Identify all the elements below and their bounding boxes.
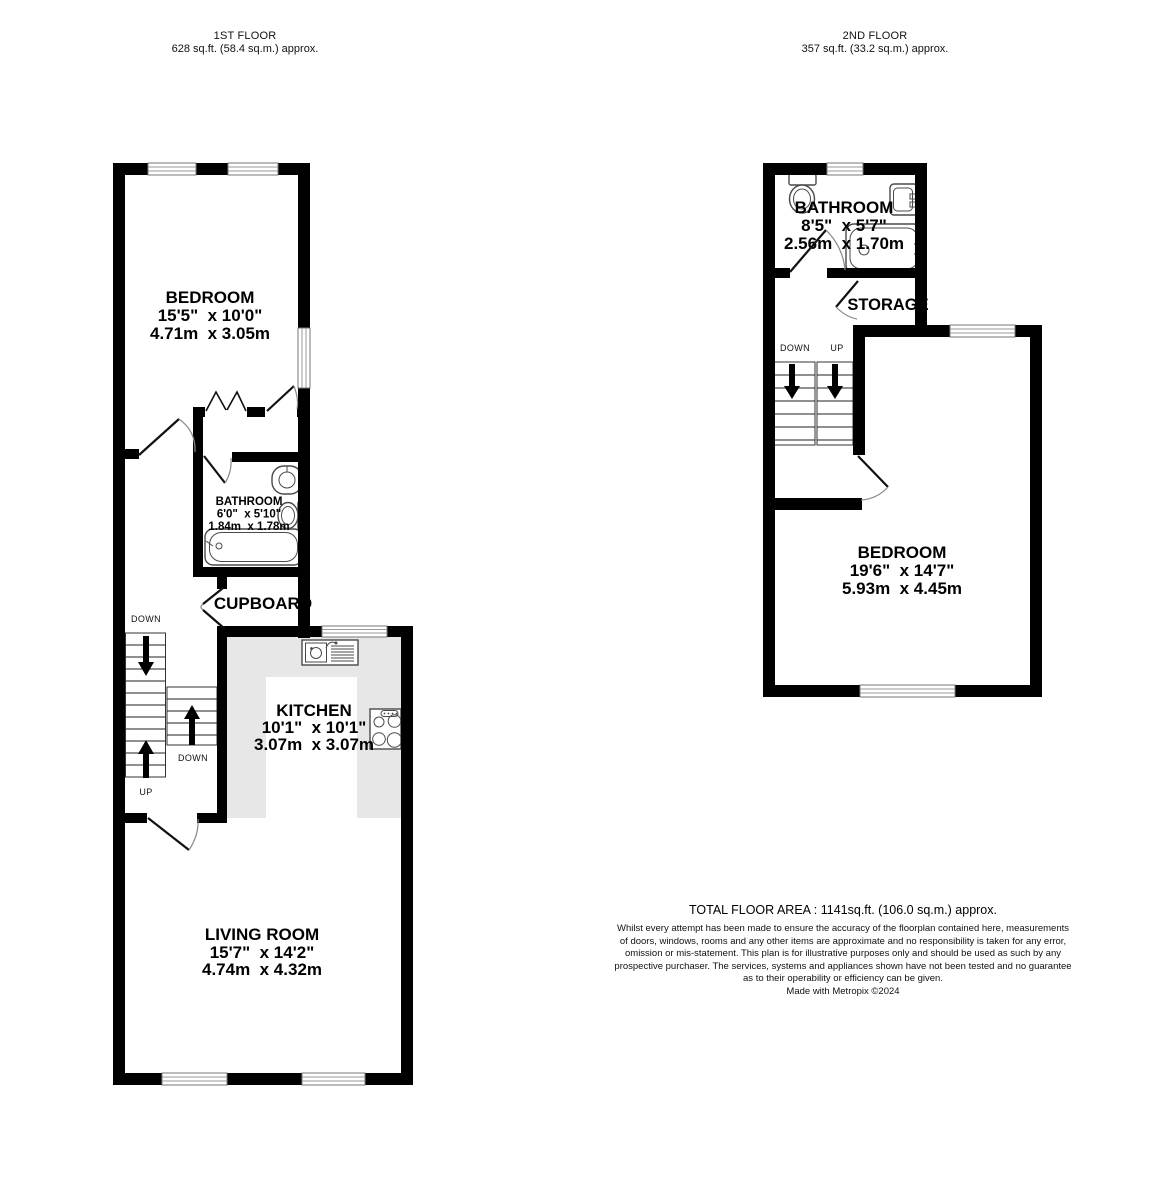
stairs2-down-arrow: [784, 364, 800, 399]
bathtub-icon: [205, 529, 302, 565]
bathroom1-label: BATHROOM: [216, 496, 283, 508]
cupboard-label: CUPBOARD: [214, 594, 312, 613]
bedroom2-dim-imperial: 19'6" x 14'7": [850, 561, 955, 580]
stove-icon: [370, 709, 402, 749]
disclaimer-line: omission or mis-statement. This plan is …: [608, 948, 1078, 961]
bathroom-sink-icon: [272, 466, 302, 494]
window: [148, 163, 196, 175]
window: [950, 325, 1015, 337]
bathroom2-dim-imperial: 8'5" x 5'7": [801, 216, 887, 235]
bathroom2-dim-metric: 2.56m x 1.70m: [784, 234, 904, 253]
stairs-up-arrow: [138, 740, 154, 778]
floorplan-drawing: BEDROOM 15'5" x 10'0" 4.71m x 3.05m BATH…: [0, 0, 1158, 1200]
window: [827, 163, 863, 175]
stairs2-down-label: DOWN: [780, 343, 810, 353]
kitchen-sink-icon: [302, 640, 358, 665]
second-floor-plan: BATHROOM 8'5" x 5'7" 2.56m x 1.70m STORA…: [763, 163, 1042, 697]
door: [267, 386, 298, 411]
disclaimer-line: prospective purchaser. The services, sys…: [608, 961, 1078, 974]
door: [139, 419, 195, 455]
floorplan-page: 1ST FLOOR 628 sq.ft. (58.4 sq.m.) approx…: [0, 0, 1158, 1200]
window: [228, 163, 278, 175]
footer: TOTAL FLOOR AREA : 1141sq.ft. (106.0 sq.…: [608, 903, 1078, 998]
window: [302, 1073, 365, 1085]
metropix-credit: Made with Metropix ©2024: [608, 986, 1078, 999]
stairs2-up-label: UP: [830, 343, 843, 353]
total-floor-area: TOTAL FLOOR AREA : 1141sq.ft. (106.0 sq.…: [608, 903, 1078, 917]
door: [858, 456, 888, 500]
stairs-down-arrow: [138, 636, 154, 676]
stairs-down-label-2: DOWN: [178, 753, 208, 763]
bedroom1-dim-imperial: 15'5" x 10'0": [158, 306, 263, 325]
bedroom2-dim-metric: 5.93m x 4.45m: [842, 579, 962, 598]
bedroom2-label: BEDROOM: [858, 543, 947, 562]
bedroom1-dim-metric: 4.71m x 3.05m: [150, 324, 270, 343]
disclaimer-line: as to their operability or efficiency ca…: [608, 973, 1078, 986]
bedroom1-label: BEDROOM: [166, 288, 255, 307]
window: [162, 1073, 227, 1085]
window: [298, 328, 310, 388]
second-floor-stairs: [773, 362, 853, 445]
living-room-label: LIVING ROOM: [205, 925, 319, 944]
living-room-dim-metric: 4.74m x 4.32m: [202, 960, 322, 979]
disclaimer-line: Whilst every attempt has been made to en…: [608, 923, 1078, 936]
bathroom2-label: BATHROOM: [795, 198, 894, 217]
kitchen-dim-metric: 3.07m x 3.07m: [254, 735, 374, 754]
door: [204, 456, 231, 483]
window: [860, 685, 955, 697]
bathroom1-dim-imperial: 6'0" x 5'10": [217, 509, 281, 521]
bathroom1-dim-metric: 1.84m x 1.78m: [208, 521, 289, 533]
stairs-up-label: UP: [139, 787, 152, 797]
stairs2-up-arrow: [827, 364, 843, 399]
bathroom-sink-icon-2: [890, 184, 918, 215]
stairs-down-label: DOWN: [131, 614, 161, 624]
disclaimer-line: of doors, windows, rooms and any other i…: [608, 936, 1078, 949]
double-door: [206, 392, 246, 411]
window: [322, 626, 387, 637]
door: [148, 818, 198, 850]
first-floor-plan: BEDROOM 15'5" x 10'0" 4.71m x 3.05m BATH…: [113, 163, 413, 1085]
